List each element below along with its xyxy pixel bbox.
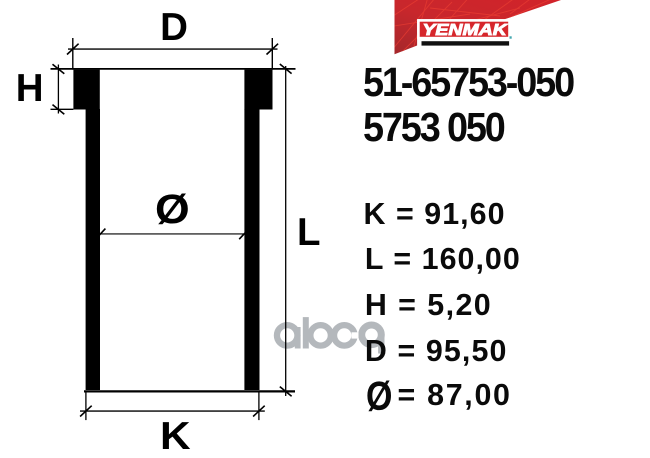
svg-text:YENMAK: YENMAK — [422, 22, 509, 39]
